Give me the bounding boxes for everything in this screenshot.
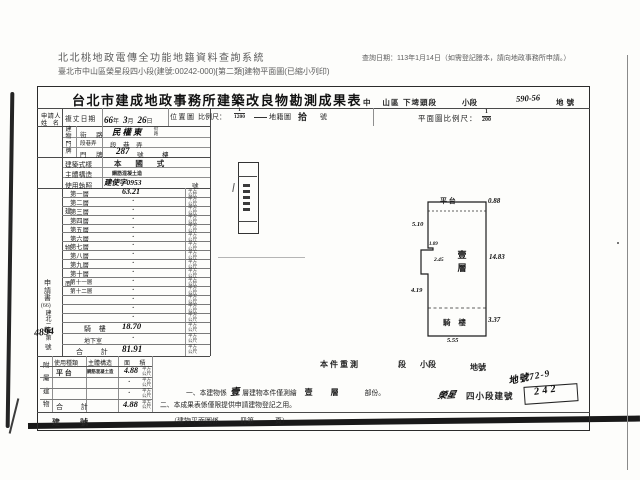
land-no-label: 地號	[556, 97, 577, 108]
resurvey-section: 段	[398, 359, 406, 370]
cadastral-sheet: 拾	[298, 110, 307, 123]
note-1: 一、本建物係壹層建物本件僅測繪壹 層部份。	[186, 384, 385, 398]
structure-label: 主體構造	[65, 169, 92, 179]
district-suffix: 區	[391, 97, 399, 108]
location-scale-label: 比例尺：	[198, 112, 226, 122]
dim-arcade: 3.37	[488, 316, 500, 324]
resurvey-landno: 地號	[470, 362, 486, 373]
street-suffix: 街路	[153, 127, 159, 137]
applicant-label-2: 姓 名	[41, 118, 61, 127]
plan-scale-label: 平面圖比例尺：	[418, 113, 478, 124]
plan-arcade-label: 騎 樓	[443, 317, 469, 328]
dim-top: 0.88	[488, 197, 500, 205]
dim-right: 14.83	[489, 253, 505, 261]
survey-date-label: 複丈日期	[65, 113, 96, 123]
land-no-handwritten: 590-56	[516, 92, 541, 104]
cadastral-sheet-suffix: 號	[320, 112, 327, 122]
subsection-label: 小段	[462, 97, 477, 108]
document-line: 臺北市中山區榮星段四小段(建號:00242-000)[第二類]建物平面圖(已縮小…	[58, 66, 330, 77]
scanned-document: 北北桃地政電傳全功能地籍資料查詢系統 查詢日期：113年1月14日（如需登記謄本…	[0, 0, 640, 480]
address-group-label: 建物門牌	[64, 127, 73, 156]
door-value: 287	[116, 146, 130, 156]
doc-no-part4: 4894	[33, 326, 54, 339]
plan-platform-label: 平 台	[440, 196, 456, 206]
lane-label: 段巷弄	[80, 139, 97, 147]
attached-total-row: 合 計 4.88 平方公尺	[40, 399, 152, 412]
plan-floor-label: 壹層	[457, 249, 467, 275]
resurvey-subsection: 小段	[420, 359, 436, 370]
dim-left-upper: 5.10	[412, 221, 423, 228]
cadastral-label: 地籍圖	[269, 112, 292, 122]
location-scale-fraction: 11200	[234, 107, 245, 120]
plan-scale-fraction: 1200	[482, 109, 491, 123]
style-value: 本 國 式	[114, 158, 170, 169]
doc-no-part2: (66)	[41, 303, 51, 309]
resurvey-label: 本件重測	[320, 359, 360, 370]
location-dash	[254, 117, 267, 118]
scan-left-edge	[6, 92, 15, 428]
total-row: 合 計 81.91 平方公尺	[62, 344, 210, 356]
dim-left-lower: 4.19	[411, 287, 422, 294]
dim-notch-b: 2.45	[434, 257, 444, 263]
district-section: 下埤頭段	[403, 97, 437, 108]
handwritten-section: 榮星	[437, 387, 458, 401]
scan-right-line	[627, 55, 628, 470]
subsection-building-stamp: 四小段建號	[466, 390, 514, 402]
system-title: 北北桃地政電傳全功能地籍資料查詢系統	[58, 49, 265, 64]
style-label: 建築式樣	[65, 159, 92, 169]
scan-left-curl	[9, 398, 20, 433]
location-map-label: 位置圖	[170, 112, 196, 122]
form-title: 台北市建成地政事務所建築改良物勘測成果表	[72, 90, 362, 109]
structure-value: 鋼筋混凝土造	[112, 170, 142, 177]
note-2: 二、本成果表係僅限提供申請建物登記之用。	[160, 399, 296, 409]
street-label: 街 路	[80, 129, 107, 139]
street-value: 民權東	[112, 126, 144, 138]
dim-bottom: 5.55	[447, 337, 458, 344]
building-no-label: 建 號	[52, 417, 97, 428]
scan-speck	[617, 242, 619, 244]
doc-no-part1: 申請書	[43, 280, 52, 303]
dim-notch-a: 1.09	[429, 242, 438, 247]
query-date: 查詢日期：113年1月14日（如需登記謄本，請向地政事務所申請。）	[362, 53, 570, 63]
doc-no-part5: 號	[45, 341, 52, 351]
location-sketch-text	[243, 184, 250, 214]
door-label: 門 牌	[80, 149, 107, 159]
page-note: （建物平面圖係 冊第 頁）	[170, 416, 289, 426]
